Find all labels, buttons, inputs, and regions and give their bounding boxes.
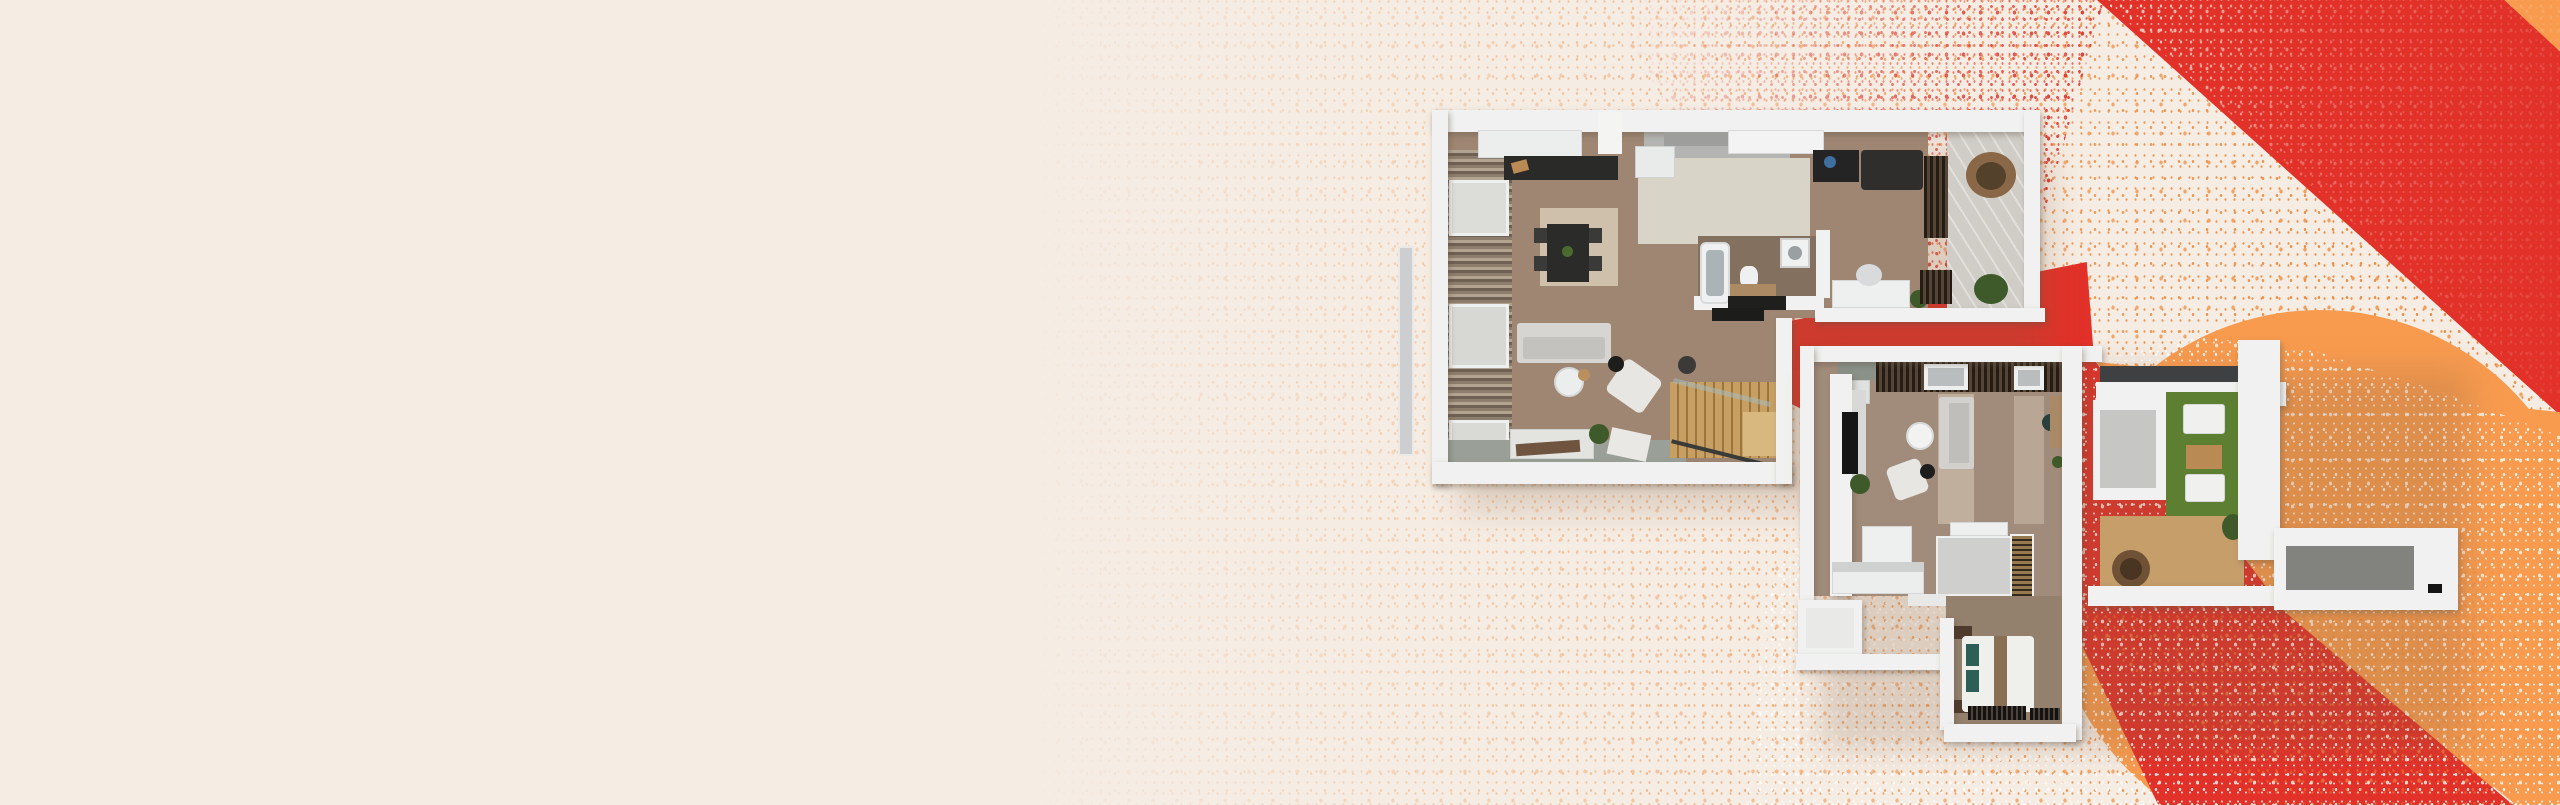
skylight-1 (1924, 364, 1968, 390)
floorplan-lower (0, 0, 2560, 805)
wing-bathroom-floor (2100, 410, 2156, 488)
bed-pillow-1 (1966, 644, 1979, 666)
wine-rack-shelf (2010, 534, 2034, 598)
outdoor-table (2186, 445, 2222, 469)
tv-black (1842, 412, 1858, 474)
bedroom-bottom-wall (1944, 724, 2076, 742)
wing-vertical-wall (2238, 340, 2280, 560)
closet-gray (1936, 536, 2012, 596)
radiator-1 (1968, 706, 2026, 720)
outdoor-seat-2 (2185, 474, 2225, 502)
open-shelf (1950, 522, 2008, 536)
bed-pillow-2 (1966, 670, 1979, 692)
outdoor-seat-1 (2183, 404, 2225, 434)
deck-chair-cushion (2120, 558, 2142, 580)
tv-plant (1850, 474, 1870, 494)
top-wall (1800, 346, 2102, 362)
sofa-seat-cushions (1949, 403, 1969, 463)
bedroom-left-wall (1940, 618, 1954, 730)
radiator-2 (2030, 708, 2060, 720)
skylight-2 (2014, 366, 2044, 390)
right-main-wall (2062, 346, 2082, 740)
porch-floor (1806, 608, 1854, 648)
coffee-table (1906, 422, 1934, 450)
kitchen-counter-top (1832, 562, 1924, 572)
door-threshold (1908, 594, 1948, 606)
rug-runner-2 (2014, 396, 2044, 524)
floor-lamp (1920, 464, 1935, 479)
bed-runner (1994, 636, 2007, 712)
storage-room-floor (2286, 546, 2414, 590)
hero-floorplan-banner (0, 0, 2560, 805)
bottom-main-wall (1796, 654, 1958, 670)
deck-bottom-wall (2088, 586, 2274, 606)
storage-doormat (2428, 584, 2442, 593)
